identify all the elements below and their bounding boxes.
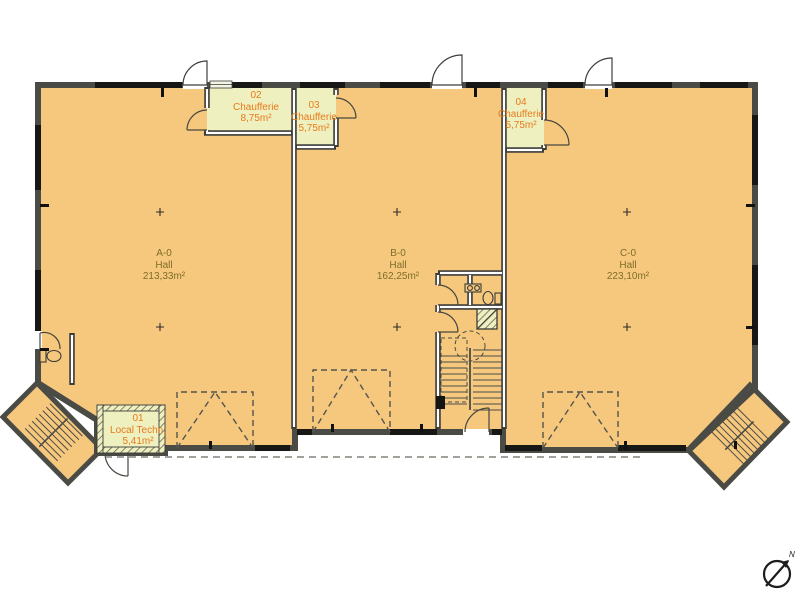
hall-name: Hall bbox=[607, 260, 649, 272]
room-area: 5,75m² bbox=[498, 120, 544, 132]
hall-area: 223,10m² bbox=[607, 271, 649, 283]
room-name: Chaufferie bbox=[498, 109, 544, 121]
north-label: N bbox=[789, 550, 795, 559]
floor-plan-drawing bbox=[0, 0, 800, 600]
room-number: 02 bbox=[233, 90, 279, 102]
hall-name: Hall bbox=[377, 260, 419, 272]
room-number: 04 bbox=[498, 97, 544, 109]
room-name: Local Techn. bbox=[110, 425, 166, 437]
duct-shaft bbox=[477, 309, 497, 329]
hall-b-label: B-0 Hall 162,25m² bbox=[377, 248, 419, 283]
hall-code: A-0 bbox=[143, 248, 185, 260]
room-area: 5,41m² bbox=[110, 436, 166, 448]
room-03-label: 03 Chaufferie 5,75m² bbox=[291, 100, 337, 135]
room-number: 03 bbox=[291, 100, 337, 112]
north-arrow-icon bbox=[764, 560, 790, 587]
room-area: 8,75m² bbox=[233, 113, 279, 125]
hall-area: 213,33m² bbox=[143, 271, 185, 283]
hall-code: B-0 bbox=[377, 248, 419, 260]
hall-c-label: C-0 Hall 223,10m² bbox=[607, 248, 649, 283]
room-area: 5,75m² bbox=[291, 123, 337, 135]
room-04-label: 04 Chaufferie 5,75m² bbox=[498, 97, 544, 132]
hall-area: 162,25m² bbox=[377, 271, 419, 283]
floor-plan: A-0 Hall 213,33m² B-0 Hall 162,25m² C-0 … bbox=[0, 0, 800, 600]
room-name: Chaufferie bbox=[291, 112, 337, 124]
hall-code: C-0 bbox=[607, 248, 649, 260]
hall-a-label: A-0 Hall 213,33m² bbox=[143, 248, 185, 283]
room-01-label: 01 Local Techn. 5,41m² bbox=[110, 413, 166, 448]
hall-name: Hall bbox=[143, 260, 185, 272]
exterior-door-swings bbox=[183, 55, 612, 85]
room-name: Chaufferie bbox=[233, 102, 279, 114]
room-02-label: 02 Chaufferie 8,75m² bbox=[233, 90, 279, 125]
room-number: 01 bbox=[110, 413, 166, 425]
